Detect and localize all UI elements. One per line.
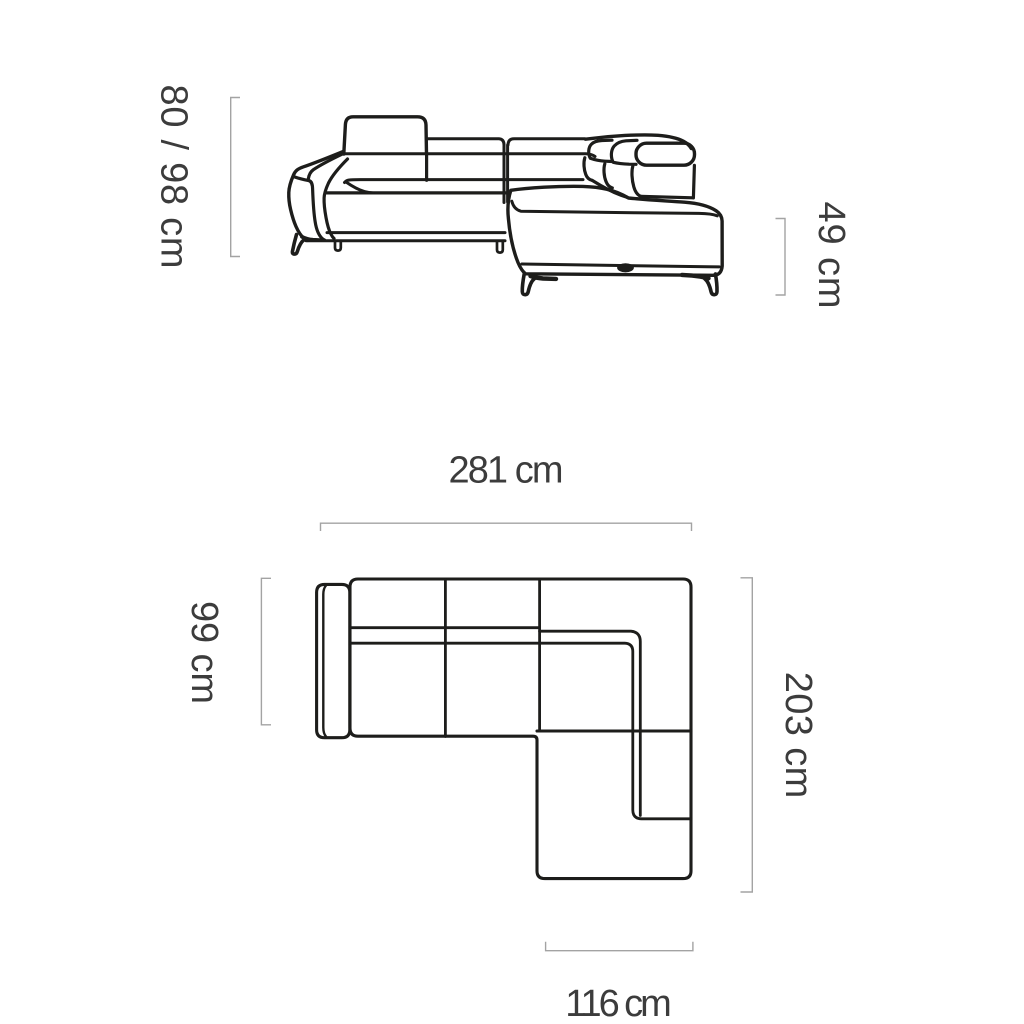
svg-text:80 / 98 cm: 80 / 98 cm xyxy=(153,85,195,269)
svg-text:49 cm: 49 cm xyxy=(810,202,852,309)
svg-text:116 cm: 116 cm xyxy=(565,983,672,1024)
svg-text:281 cm: 281 cm xyxy=(449,449,564,491)
svg-text:203 cm: 203 cm xyxy=(777,672,819,799)
svg-text:99 cm: 99 cm xyxy=(183,601,225,704)
